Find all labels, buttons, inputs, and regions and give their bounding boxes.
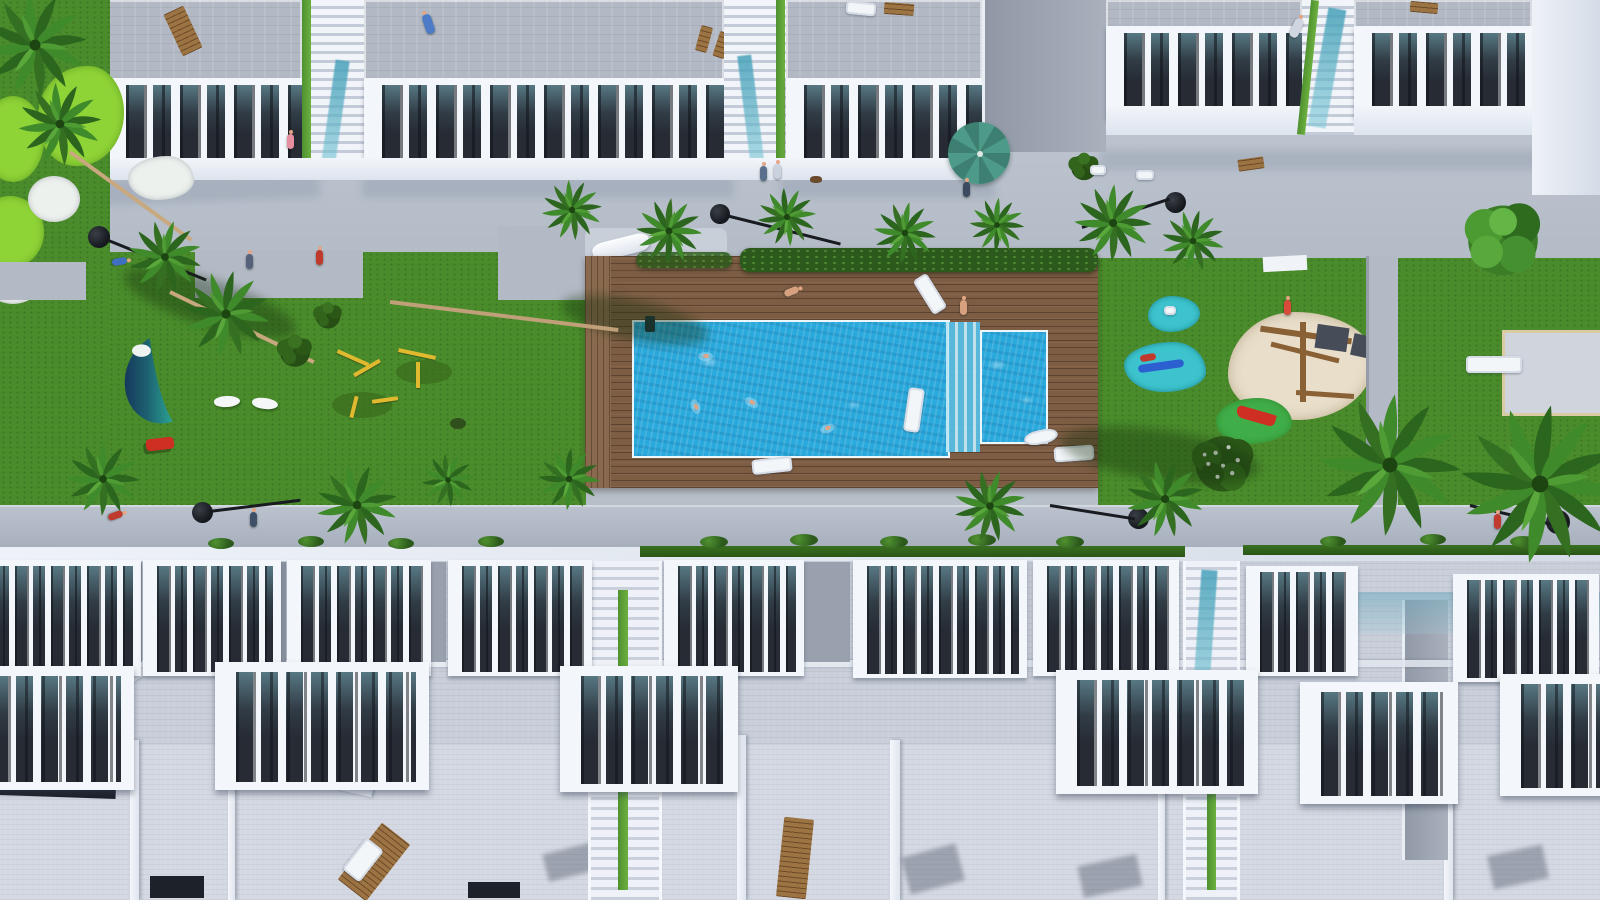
person-walking [760, 166, 767, 181]
facade-strip [105, 158, 982, 180]
turtle-sculpture [450, 418, 466, 429]
townhouse-balcony-row2 [1300, 682, 1458, 804]
townhouse-balcony-row1 [287, 560, 431, 676]
tall-building-side-wall [982, 0, 1106, 152]
person-on-path [316, 250, 323, 265]
splash-toy [1164, 306, 1176, 315]
apartment-block-5 [1354, 0, 1532, 135]
roof-terrace [1106, 0, 1302, 28]
facade-ledge [1106, 106, 1302, 135]
person-seated-deck [960, 300, 967, 315]
bush [306, 292, 350, 336]
garden-walkway [0, 262, 86, 300]
stairwell-gap [302, 0, 364, 178]
townhouse-balcony-row2 [560, 666, 738, 792]
apartment-block-2 [364, 0, 724, 160]
leafy-tree [1428, 180, 1578, 296]
terrace-table [1090, 165, 1106, 175]
townhouse-balcony-row2 [1056, 670, 1258, 794]
gym-bar [416, 362, 420, 388]
townhouse-balcony-row1 [1453, 574, 1599, 682]
sand-bunker [128, 156, 194, 200]
apartment-block-4 [1106, 0, 1302, 135]
townhouse-balcony-row1 [143, 560, 281, 676]
dog [810, 176, 822, 183]
shrub [1320, 536, 1346, 547]
gym-mat [396, 360, 452, 384]
street-lamp [192, 496, 302, 526]
parapet-wall [890, 740, 900, 900]
roof-opening [150, 876, 204, 898]
person-walking [774, 164, 781, 179]
person-walking [287, 134, 294, 149]
roof-sun-lounger [1410, 1, 1439, 14]
palm-tree [1067, 177, 1160, 270]
terrace-table [1136, 170, 1154, 180]
stair-glass [737, 55, 765, 168]
townhouse-balcony-row1 [0, 560, 141, 676]
ornamental-pond [118, 336, 192, 430]
shrub [208, 538, 234, 549]
facade-ledge [1354, 106, 1532, 135]
kids-pool [980, 330, 1048, 444]
right-edge-building [1532, 0, 1600, 195]
stairwell-gap [724, 0, 786, 178]
parapet-wall [737, 735, 746, 900]
palm-tree [1154, 202, 1232, 280]
sand-bunker [28, 176, 80, 222]
townhouse-balcony-row2 [0, 666, 134, 790]
palm-tree [310, 458, 405, 553]
apartment-block-1 [108, 0, 302, 160]
lamp-head [88, 226, 110, 248]
person-walking [250, 512, 257, 527]
shrub [1056, 536, 1084, 548]
townhouse-balcony-row2 [1500, 674, 1600, 796]
palm-tree [1119, 453, 1212, 546]
townhouse-balcony-row1 [1033, 560, 1179, 676]
stair-green-strip [776, 0, 785, 178]
stair-glass [320, 60, 349, 171]
waterfall-gap [1302, 0, 1354, 135]
person-seated [963, 182, 970, 197]
person-on-path [246, 254, 253, 269]
balcony [1106, 26, 1320, 118]
person-jogging [1494, 514, 1501, 529]
play-structure-roof [1314, 324, 1349, 352]
townhouse-balcony-row1 [664, 560, 804, 676]
shrub [790, 534, 818, 546]
palm-tree [540, 178, 604, 242]
building-shadow [1100, 150, 1545, 170]
shrub [880, 536, 908, 548]
patio-umbrella [948, 122, 1010, 184]
shrub [700, 536, 728, 548]
roof-terrace [108, 0, 302, 80]
balcony [1354, 26, 1550, 118]
roof-terrace [1354, 0, 1532, 28]
aerial-render-scene [0, 0, 1600, 900]
palm-tree [16, 80, 104, 168]
garden-bench [1466, 356, 1522, 373]
shade-sail [1263, 255, 1308, 272]
townhouse-balcony-row1 [1246, 566, 1358, 676]
stair-green-strip [302, 0, 311, 178]
pool-steps [946, 322, 980, 452]
shrub [478, 536, 504, 547]
townhouse-balcony-row1 [448, 560, 592, 676]
roof-sun-lounger [884, 2, 915, 16]
roof-opening [468, 882, 520, 898]
hedge-row [640, 546, 1185, 557]
roof-terrace [364, 0, 724, 80]
townhouse-balcony-row2 [215, 662, 429, 790]
gym-mat [332, 392, 392, 418]
swimmer [698, 352, 713, 361]
palm-tree [59, 435, 147, 523]
lamp-arm [1050, 504, 1135, 520]
child-playing [1284, 300, 1291, 315]
townhouse-balcony-row1 [853, 560, 1027, 678]
